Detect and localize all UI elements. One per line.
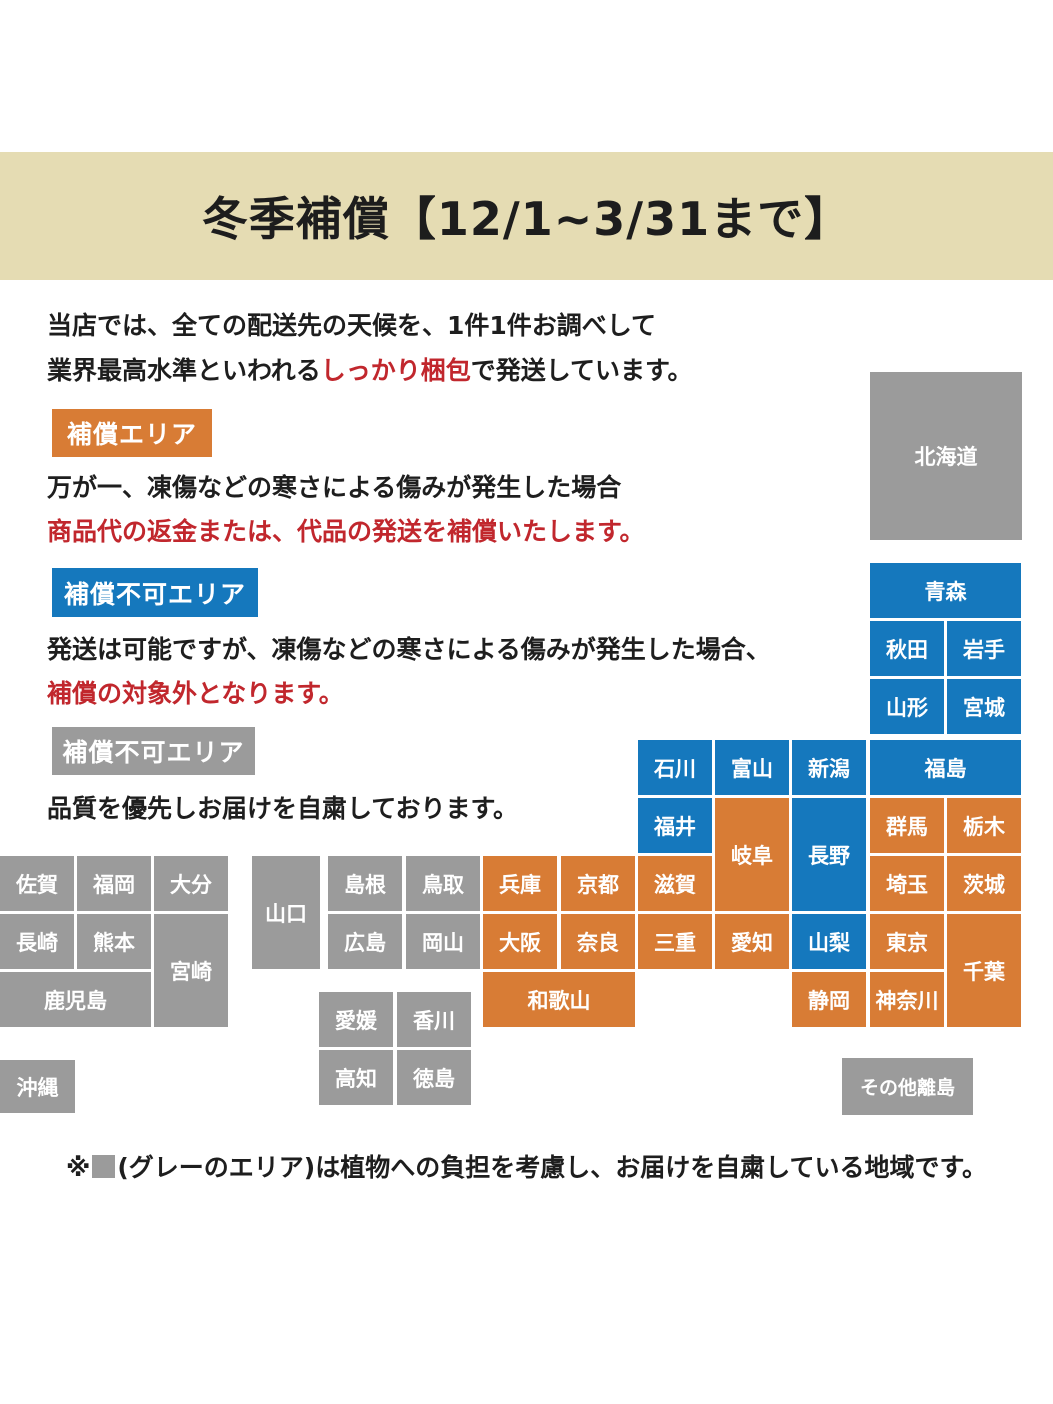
map-cell: 宮城 bbox=[947, 679, 1021, 734]
map-cell: 富山 bbox=[715, 740, 789, 795]
intro-line-2-pre: 業界最高水準といわれる bbox=[47, 356, 321, 385]
map-cell: 石川 bbox=[638, 740, 712, 795]
map-cell: 福井 bbox=[638, 798, 712, 853]
no-shipping-text: 品質を優先しお届けを自粛しております。 bbox=[47, 786, 518, 831]
map-cell: 徳島 bbox=[397, 1050, 471, 1105]
map-cell: 奈良 bbox=[561, 914, 635, 969]
map-cell: 群馬 bbox=[870, 798, 944, 853]
map-cell: 香川 bbox=[397, 992, 471, 1047]
header-band: 冬季補償【12/1~3/31まで】 bbox=[0, 152, 1053, 280]
no-compensation-line-2: 補償の対象外となります。 bbox=[47, 672, 771, 716]
footnote-prefix: ※ bbox=[66, 1153, 90, 1182]
compensation-area-text: 万が一、凍傷などの寒さによる傷みが発生した場合 商品代の返金または、代品の発送を… bbox=[47, 466, 645, 554]
map-cell: 秋田 bbox=[870, 621, 944, 676]
map-cell: 京都 bbox=[561, 856, 635, 911]
map-cell: 山梨 bbox=[792, 914, 866, 969]
map-cell: 北海道 bbox=[870, 372, 1022, 540]
map-cell: 大分 bbox=[154, 856, 228, 911]
map-cell: 長野 bbox=[792, 798, 866, 911]
map-cell: 神奈川 bbox=[870, 972, 944, 1027]
intro-paragraph: 当店では、全ての配送先の天候を、1件1件お調べして 業界最高水準といわれるしっか… bbox=[47, 303, 693, 393]
map-cell: 東京 bbox=[870, 914, 944, 969]
compensation-area-line-1: 万が一、凍傷などの寒さによる傷みが発生した場合 bbox=[47, 466, 645, 510]
map-cell: 栃木 bbox=[947, 798, 1021, 853]
map-cell: 山形 bbox=[870, 679, 944, 734]
intro-line-2: 業界最高水準といわれるしっかり梱包で発送しています。 bbox=[47, 348, 693, 393]
map-cell: 島根 bbox=[328, 856, 402, 911]
map-cell: 大阪 bbox=[483, 914, 557, 969]
map-cell: 愛媛 bbox=[319, 992, 393, 1047]
no-compensation-badge: 補償不可エリア bbox=[52, 568, 258, 617]
map-cell: 鹿児島 bbox=[0, 972, 151, 1027]
no-shipping-badge: 補償不可エリア bbox=[52, 727, 255, 775]
map-cell: 岡山 bbox=[406, 914, 480, 969]
map-cell: 福岡 bbox=[77, 856, 151, 911]
map-cell: 三重 bbox=[638, 914, 712, 969]
intro-line-2-post: で発送しています。 bbox=[471, 356, 693, 385]
map-cell: 福島 bbox=[870, 740, 1021, 795]
map-cell: 広島 bbox=[328, 914, 402, 969]
intro-line-2-emphasis: しっかり梱包 bbox=[321, 356, 471, 385]
gray-square-icon bbox=[92, 1155, 115, 1178]
no-shipping-line-1: 品質を優先しお届けを自粛しております。 bbox=[47, 786, 518, 831]
map-cell: 愛知 bbox=[715, 914, 789, 969]
no-compensation-line-1: 発送は可能ですが、凍傷などの寒さによる傷みが発生した場合、 bbox=[47, 628, 771, 672]
compensation-area-badge: 補償エリア bbox=[52, 409, 212, 457]
no-compensation-text: 発送は可能ですが、凍傷などの寒さによる傷みが発生した場合、 補償の対象外となりま… bbox=[47, 628, 771, 716]
map-cell: 長崎 bbox=[0, 914, 74, 969]
page-title: 冬季補償【12/1~3/31まで】 bbox=[202, 183, 851, 249]
map-cell: 沖縄 bbox=[0, 1060, 75, 1113]
footnote: ※(グレーのエリア)は植物への負担を考慮し、お届けを自粛している地域です。 bbox=[0, 1148, 1053, 1184]
map-cell: 埼玉 bbox=[870, 856, 944, 911]
map-cell: 佐賀 bbox=[0, 856, 74, 911]
map-cell: 茨城 bbox=[947, 856, 1021, 911]
map-cell: その他離島 bbox=[842, 1058, 973, 1115]
map-cell: 新潟 bbox=[792, 740, 866, 795]
map-cell: 熊本 bbox=[77, 914, 151, 969]
map-cell: 青森 bbox=[870, 563, 1021, 618]
map-cell: 滋賀 bbox=[638, 856, 712, 911]
map-cell: 宮崎 bbox=[154, 914, 228, 1027]
intro-line-1: 当店では、全ての配送先の天候を、1件1件お調べして bbox=[47, 303, 693, 348]
map-cell: 和歌山 bbox=[483, 972, 635, 1027]
footnote-text: (グレーのエリア)は植物への負担を考慮し、お届けを自粛している地域です。 bbox=[117, 1153, 987, 1182]
map-cell: 高知 bbox=[319, 1050, 393, 1105]
compensation-area-line-2: 商品代の返金または、代品の発送を補償いたします。 bbox=[47, 510, 645, 554]
map-cell: 鳥取 bbox=[406, 856, 480, 911]
map-cell: 千葉 bbox=[947, 914, 1021, 1027]
map-cell: 岐阜 bbox=[715, 798, 789, 911]
map-cell: 岩手 bbox=[947, 621, 1021, 676]
map-cell: 山口 bbox=[252, 856, 320, 969]
map-cell: 静岡 bbox=[792, 972, 866, 1027]
map-cell: 兵庫 bbox=[483, 856, 557, 911]
